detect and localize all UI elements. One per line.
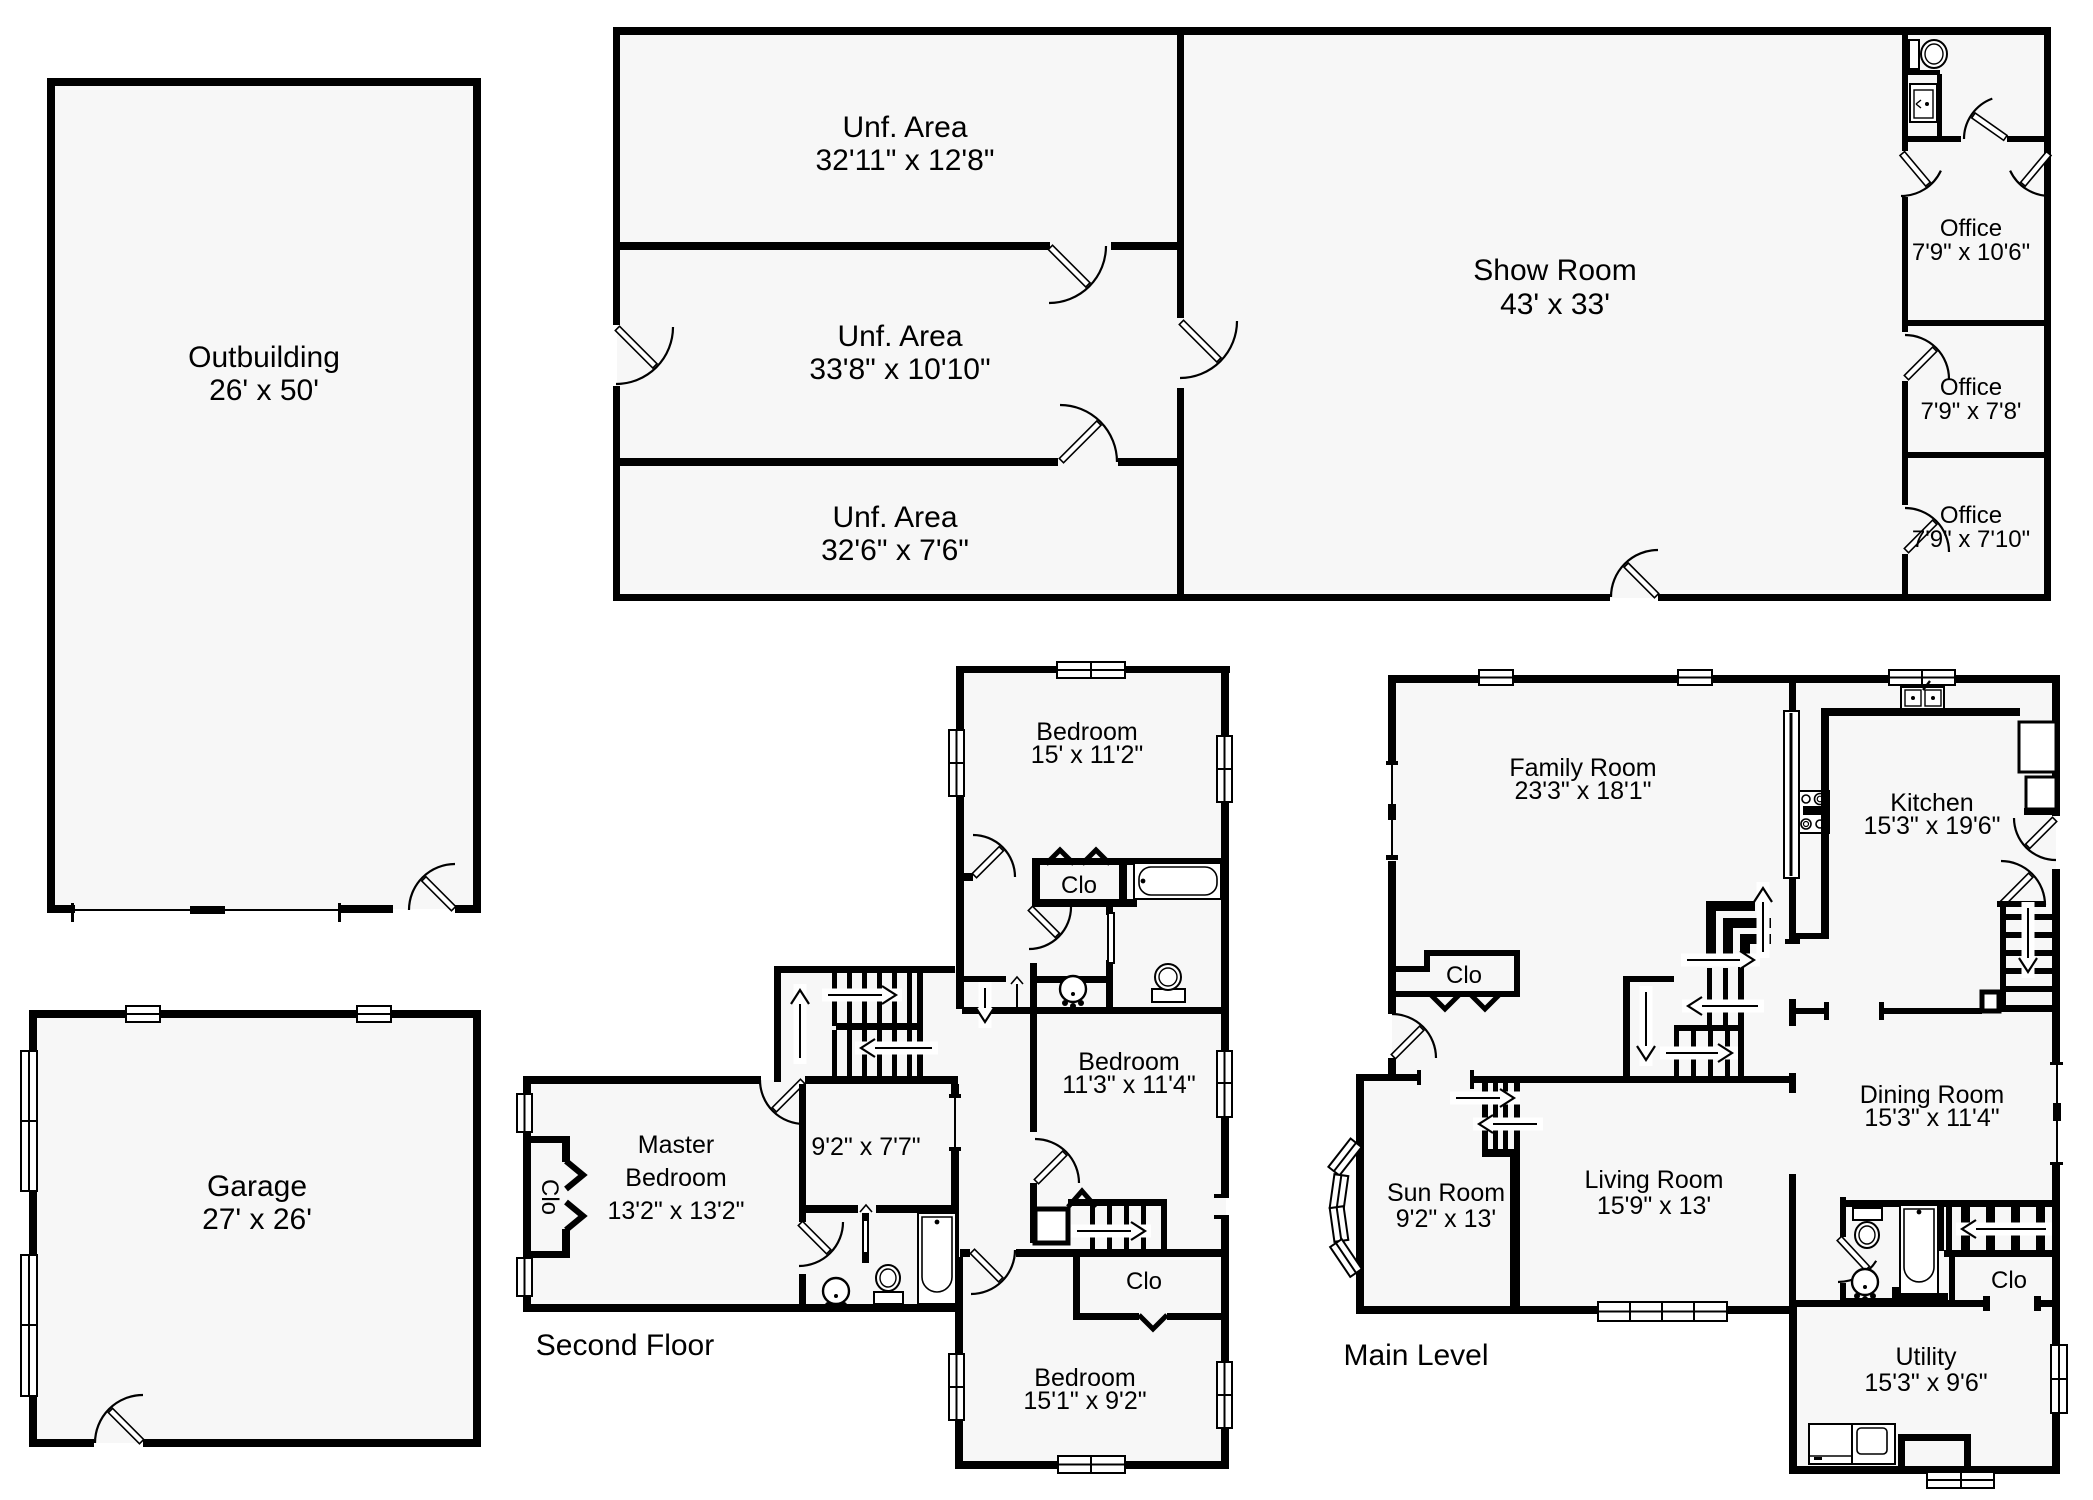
svg-text:Clo: Clo <box>536 1179 563 1215</box>
svg-text:Living Room15'9" x 13': Living Room15'9" x 13' <box>1585 1166 1724 1220</box>
svg-text:Dining Room15'3" x 11'4": Dining Room15'3" x 11'4" <box>1860 1081 2005 1132</box>
svg-text:Sun Room9'2" x 13': Sun Room9'2" x 13' <box>1387 1179 1505 1233</box>
svg-text:Clo: Clo <box>1061 872 1097 899</box>
svg-text:Family Room23'3" x 18'1": Family Room23'3" x 18'1" <box>1509 754 1656 805</box>
svg-text:Clo: Clo <box>1991 1267 2027 1294</box>
svg-text:Second Floor: Second Floor <box>536 1329 714 1362</box>
svg-text:Bedroom15' x 11'2": Bedroom15' x 11'2" <box>1031 718 1143 769</box>
svg-text:9'2" x 7'7": 9'2" x 7'7" <box>811 1133 920 1161</box>
svg-text:Garage27' x 26': Garage27' x 26' <box>202 1170 312 1236</box>
svg-text:Bedroom11'3" x 11'4": Bedroom11'3" x 11'4" <box>1062 1048 1195 1099</box>
svg-text:Unf. Area32'6" x 7'6": Unf. Area32'6" x 7'6" <box>821 501 969 567</box>
svg-text:Outbuilding26' x 50': Outbuilding26' x 50' <box>188 341 340 407</box>
svg-text:Clo: Clo <box>1446 962 1482 989</box>
svg-text:Main Level: Main Level <box>1343 1339 1488 1372</box>
svg-text:Bedroom15'1" x 9'2": Bedroom15'1" x 9'2" <box>1023 1364 1146 1415</box>
svg-text:Clo: Clo <box>1126 1268 1162 1295</box>
